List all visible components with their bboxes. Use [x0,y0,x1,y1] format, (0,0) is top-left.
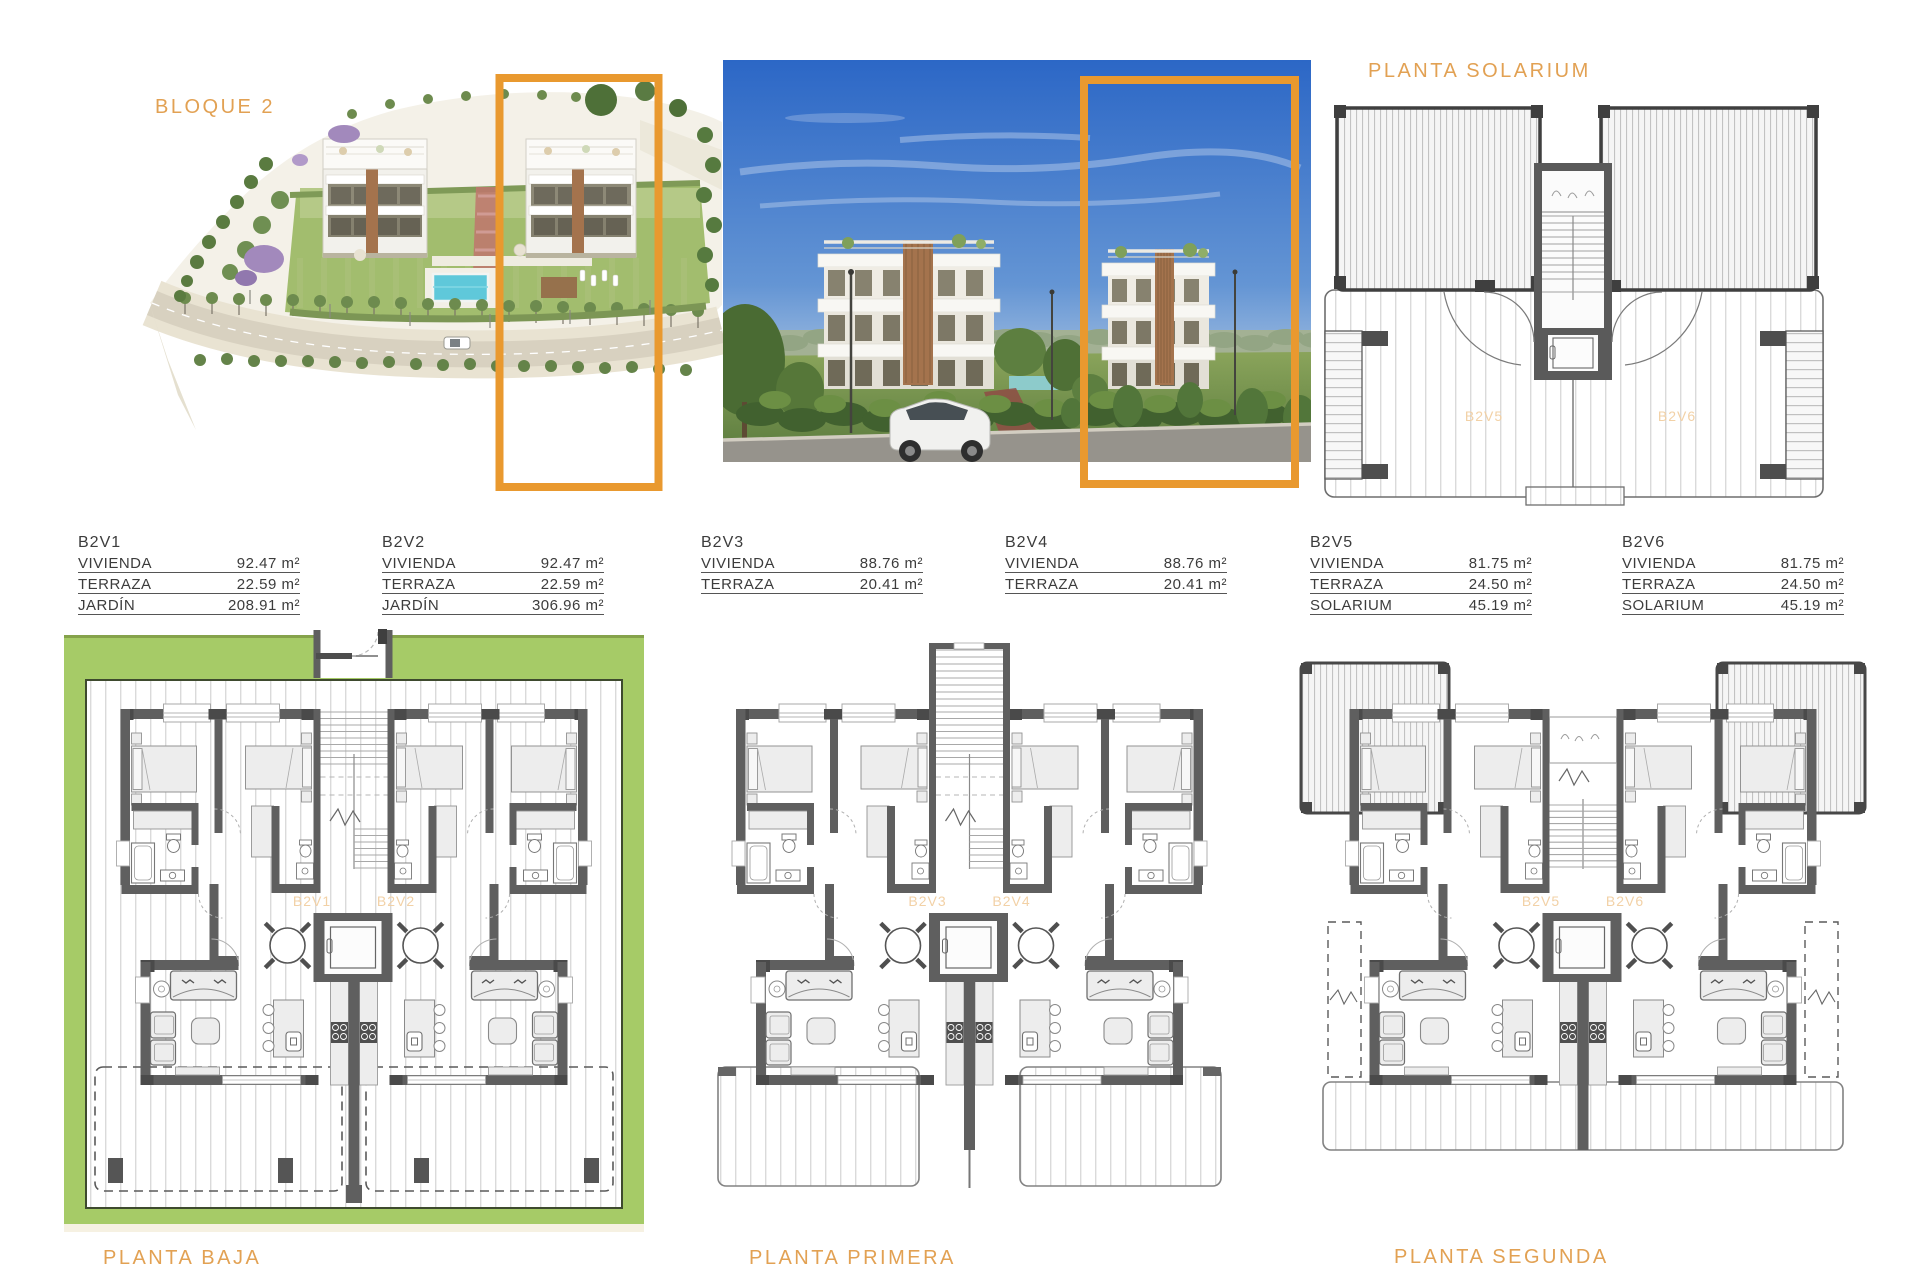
svg-text:88.76 m²: 88.76 m² [860,555,923,572]
svg-text:VIVIENDA: VIVIENDA [701,555,775,572]
svg-text:BLOQUE 2: BLOQUE 2 [155,96,275,118]
svg-text:TERRAZA: TERRAZA [1005,576,1079,593]
svg-text:B2V5: B2V5 [1465,408,1503,424]
svg-text:92.47 m²: 92.47 m² [237,555,300,572]
svg-text:TERRAZA: TERRAZA [1310,576,1384,593]
svg-text:TERRAZA: TERRAZA [78,576,152,593]
svg-text:PLANTA BAJA: PLANTA BAJA [103,1247,261,1269]
svg-text:B2V4: B2V4 [1005,534,1048,551]
svg-text:B2V6: B2V6 [1658,408,1696,424]
svg-text:VIVIENDA: VIVIENDA [1310,555,1384,572]
svg-text:PLANTA SOLARIUM: PLANTA SOLARIUM [1368,60,1591,82]
svg-text:20.41 m²: 20.41 m² [1164,576,1227,593]
svg-text:22.59 m²: 22.59 m² [237,576,300,593]
svg-text:B2V1: B2V1 [293,893,331,909]
svg-text:92.47 m²: 92.47 m² [541,555,604,572]
svg-text:B2V2: B2V2 [377,893,415,909]
svg-text:JARDÍN: JARDÍN [78,597,135,614]
svg-text:B2V5: B2V5 [1522,893,1560,909]
svg-text:VIVIENDA: VIVIENDA [78,555,152,572]
svg-text:B2V6: B2V6 [1606,893,1644,909]
svg-text:81.75 m²: 81.75 m² [1469,555,1532,572]
svg-text:306.96 m²: 306.96 m² [532,597,604,614]
svg-text:TERRAZA: TERRAZA [701,576,775,593]
svg-text:B2V4: B2V4 [992,893,1030,909]
svg-text:VIVIENDA: VIVIENDA [382,555,456,572]
svg-text:24.50 m²: 24.50 m² [1469,576,1532,593]
svg-text:PLANTA PRIMERA: PLANTA PRIMERA [749,1247,956,1269]
svg-text:TERRAZA: TERRAZA [1622,576,1696,593]
svg-text:B2V6: B2V6 [1622,534,1665,551]
svg-text:45.19 m²: 45.19 m² [1781,597,1844,614]
svg-text:B2V2: B2V2 [382,534,425,551]
svg-text:45.19 m²: 45.19 m² [1469,597,1532,614]
svg-text:22.59 m²: 22.59 m² [541,576,604,593]
svg-text:VIVIENDA: VIVIENDA [1005,555,1079,572]
svg-text:B2V5: B2V5 [1310,534,1353,551]
svg-text:SOLARIUM: SOLARIUM [1310,597,1392,614]
svg-text:20.41 m²: 20.41 m² [860,576,923,593]
svg-text:PLANTA SEGUNDA: PLANTA SEGUNDA [1394,1246,1609,1268]
svg-text:81.75 m²: 81.75 m² [1781,555,1844,572]
svg-text:B2V3: B2V3 [701,534,744,551]
svg-text:B2V1: B2V1 [78,534,121,551]
svg-text:SOLARIUM: SOLARIUM [1622,597,1704,614]
svg-text:B2V3: B2V3 [908,893,946,909]
svg-text:JARDÍN: JARDÍN [382,597,439,614]
svg-text:88.76 m²: 88.76 m² [1164,555,1227,572]
svg-text:TERRAZA: TERRAZA [382,576,456,593]
svg-text:208.91 m²: 208.91 m² [228,597,300,614]
svg-text:24.50 m²: 24.50 m² [1781,576,1844,593]
svg-text:VIVIENDA: VIVIENDA [1622,555,1696,572]
